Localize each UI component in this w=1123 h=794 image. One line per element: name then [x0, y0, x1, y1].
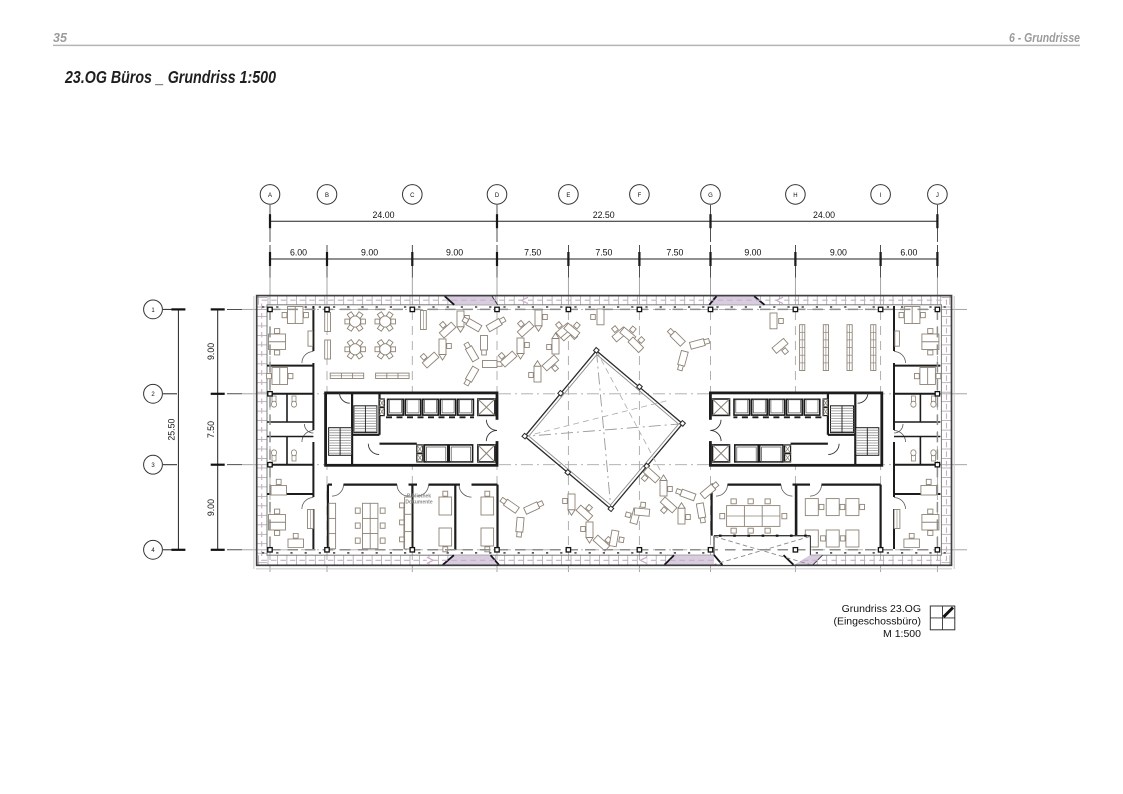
svg-text:9.00: 9.00	[744, 248, 761, 258]
svg-text:9.00: 9.00	[446, 248, 463, 258]
svg-text:M 1:500: M 1:500	[883, 628, 921, 640]
svg-text:25.50: 25.50	[167, 418, 177, 440]
svg-text:C: C	[410, 193, 415, 199]
svg-text:7.50: 7.50	[595, 248, 612, 258]
svg-text:Dokumente: Dokumente	[405, 500, 432, 506]
svg-text:23.OG Büros _ Grundriss 1:500: 23.OG Büros _ Grundriss 1:500	[64, 67, 276, 87]
svg-text:6.00: 6.00	[290, 248, 307, 258]
svg-text:F: F	[638, 193, 642, 199]
svg-text:6 - Grundrisse: 6 - Grundrisse	[1009, 31, 1080, 45]
svg-text:22.50: 22.50	[593, 210, 615, 220]
svg-text:7.50: 7.50	[524, 248, 541, 258]
svg-text:35: 35	[53, 31, 68, 45]
svg-text:B: B	[325, 193, 329, 199]
svg-text:(Eingeschossbüro): (Eingeschossbüro)	[833, 616, 921, 628]
svg-text:9.00: 9.00	[206, 343, 216, 360]
svg-text:9.00: 9.00	[830, 248, 847, 258]
svg-text:24.00: 24.00	[813, 210, 835, 220]
svg-text:J: J	[936, 193, 939, 199]
svg-text:9.00: 9.00	[361, 248, 378, 258]
svg-text:D: D	[495, 193, 500, 199]
svg-text:7.50: 7.50	[666, 248, 683, 258]
svg-text:Grundriss 23.OG: Grundriss 23.OG	[842, 603, 921, 615]
svg-text:6.00: 6.00	[900, 248, 917, 258]
svg-text:A: A	[268, 193, 272, 199]
svg-text:E: E	[566, 193, 570, 199]
svg-text:H: H	[793, 193, 797, 199]
svg-text:G: G	[708, 193, 713, 199]
svg-text:7.50: 7.50	[206, 421, 216, 438]
svg-text:9.00: 9.00	[206, 499, 216, 516]
svg-text:24.00: 24.00	[372, 210, 394, 220]
